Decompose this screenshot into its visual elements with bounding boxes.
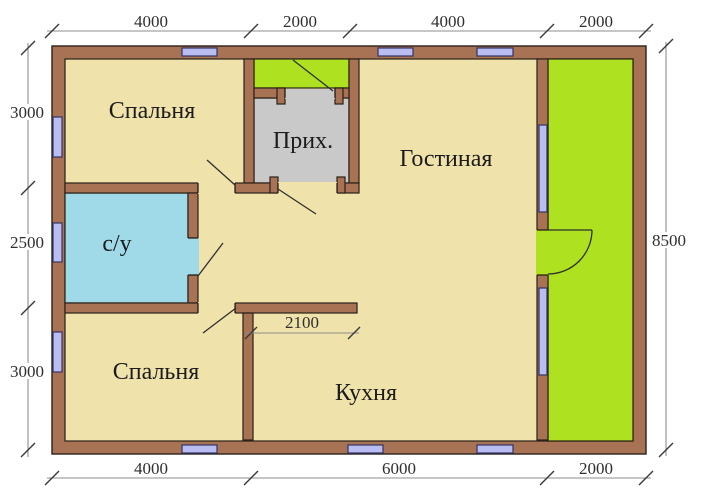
hall-door-jamb-right <box>337 177 345 193</box>
window-left-bathroom <box>53 223 62 262</box>
wall-bathroom-east-upper <box>188 193 198 238</box>
dim-top-3: 4000 <box>431 12 465 31</box>
doorway-bathroom <box>187 238 199 275</box>
label-bedroom-bottom: Спальня <box>113 359 200 385</box>
porch-door-jamb-left <box>277 88 285 104</box>
window-top-living-1 <box>378 48 413 56</box>
label-living-room: Гостиная <box>400 146 493 172</box>
dim-bottom-3: 2000 <box>579 459 613 478</box>
wall-bedroom-top-east <box>244 59 254 183</box>
floor-plan-canvas: 4000 2000 4000 2000 4000 6000 2000 3000 … <box>0 0 701 502</box>
window-bottom-bedroom <box>182 445 217 453</box>
window-left-bedroom-top <box>53 117 62 157</box>
doorway-porch <box>285 89 335 99</box>
dim-top-1: 4000 <box>134 12 168 31</box>
floor-plan-drawing: 4000 2000 4000 2000 4000 6000 2000 3000 … <box>0 0 701 502</box>
window-veranda-kitchen <box>539 288 547 375</box>
wall-bathroom-bottom <box>65 303 198 313</box>
doorway-veranda <box>536 230 549 275</box>
label-kitchen: Кухня <box>335 380 397 406</box>
doorway-bedroom-top <box>198 182 235 194</box>
dim-right-1: 8500 <box>652 231 686 250</box>
wall-kitchen-north <box>235 303 357 313</box>
wall-bathroom-east-lower <box>188 275 198 303</box>
wall-bathroom-top <box>65 183 198 193</box>
veranda-floor <box>548 59 633 441</box>
dim-bottom-1: 4000 <box>134 459 168 478</box>
label-bedroom-top: Спальня <box>109 98 196 124</box>
dim-top-4: 2000 <box>579 12 613 31</box>
window-veranda-living <box>539 125 547 212</box>
label-bathroom: с/у <box>102 231 131 257</box>
dim-left-3: 3000 <box>10 362 44 381</box>
window-bottom-kitchen-1 <box>348 445 383 453</box>
wall-hall-east <box>349 59 359 183</box>
dim-left-2: 2500 <box>10 233 44 252</box>
dim-bottom-2: 6000 <box>382 459 416 478</box>
porch-floor <box>254 59 349 88</box>
window-top-bedroom <box>182 48 217 56</box>
doorway-entry-hall <box>278 182 337 194</box>
dim-top-2: 2000 <box>283 12 317 31</box>
window-top-living-2 <box>477 48 513 56</box>
dim-interior-2100: 2100 <box>285 313 319 332</box>
hall-door-jamb-left <box>270 177 278 193</box>
window-bottom-kitchen-2 <box>477 445 513 453</box>
window-left-bedroom-bottom <box>53 332 62 372</box>
label-entry-hall: Прих. <box>273 128 333 154</box>
dim-left-1: 3000 <box>10 103 44 122</box>
porch-door-jamb-right <box>335 88 343 104</box>
